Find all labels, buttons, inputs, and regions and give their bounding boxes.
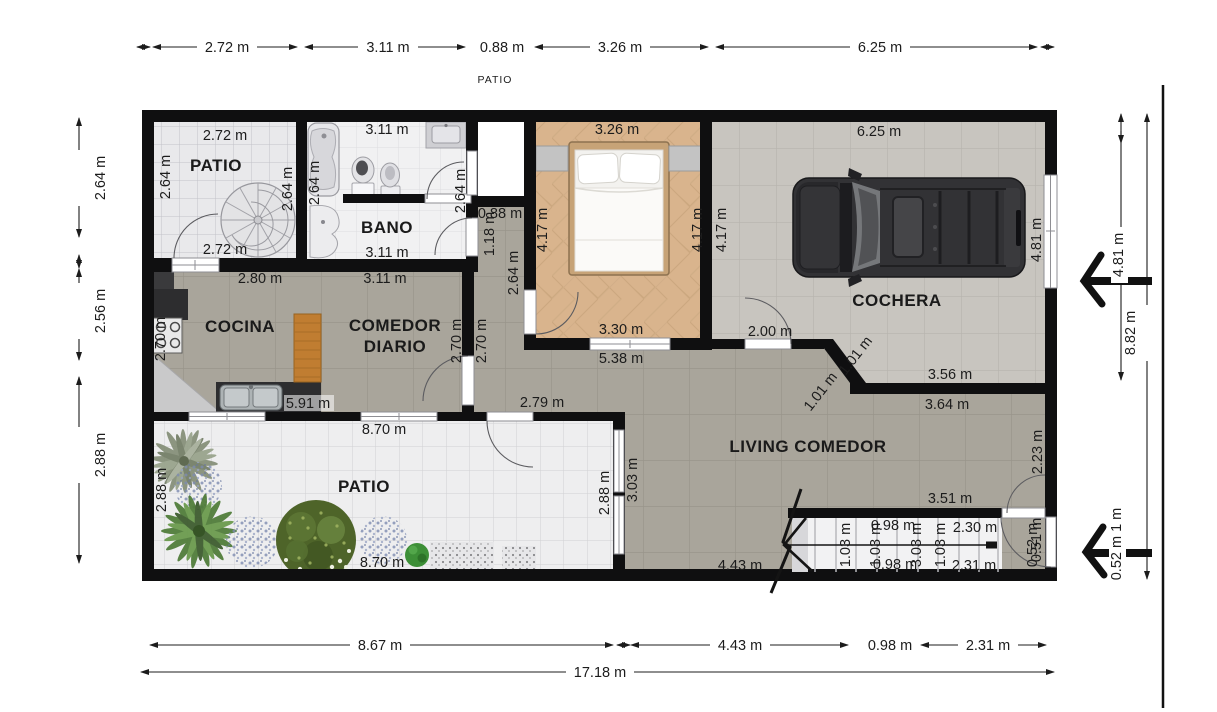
svg-text:3.11 m: 3.11 m xyxy=(363,271,406,287)
svg-text:5.38 m: 5.38 m xyxy=(599,351,643,367)
svg-text:3.64 m: 3.64 m xyxy=(925,397,969,413)
svg-text:6.25 m: 6.25 m xyxy=(857,124,901,140)
svg-text:COCINA: COCINA xyxy=(205,317,275,336)
svg-text:2.31 m: 2.31 m xyxy=(952,558,996,574)
svg-text:2.70 m: 2.70 m xyxy=(474,319,490,363)
svg-text:2.31 m: 2.31 m xyxy=(966,638,1010,654)
svg-text:8.70 m: 8.70 m xyxy=(360,555,404,571)
svg-text:3.26 m: 3.26 m xyxy=(595,122,639,138)
svg-text:8.67 m: 8.67 m xyxy=(358,638,402,654)
svg-text:2.30 m: 2.30 m xyxy=(953,520,997,536)
svg-text:DIARIO: DIARIO xyxy=(364,337,427,356)
svg-text:2.88 m: 2.88 m xyxy=(93,433,109,477)
svg-text:2.72 m: 2.72 m xyxy=(205,40,249,56)
svg-text:PATIO: PATIO xyxy=(338,477,390,496)
svg-text:3.51 m: 3.51 m xyxy=(928,491,972,507)
svg-text:17.18 m: 17.18 m xyxy=(574,665,626,681)
svg-text:BANO: BANO xyxy=(361,218,413,237)
svg-text:4.17 m: 4.17 m xyxy=(690,208,706,252)
svg-text:2.64 m: 2.64 m xyxy=(453,169,469,213)
svg-text:3.30 m: 3.30 m xyxy=(599,322,643,338)
svg-text:4.17 m: 4.17 m xyxy=(714,208,730,252)
svg-text:1.03 m: 1.03 m xyxy=(868,523,884,567)
svg-text:2.64 m: 2.64 m xyxy=(506,251,522,295)
svg-text:3.11 m: 3.11 m xyxy=(365,245,408,261)
svg-text:1.03 m: 1.03 m xyxy=(933,523,949,567)
svg-text:4.43 m: 4.43 m xyxy=(718,558,762,574)
svg-text:3.11 m: 3.11 m xyxy=(366,40,409,56)
svg-text:LIVING COMEDOR: LIVING COMEDOR xyxy=(729,437,886,456)
svg-text:4.81 m: 4.81 m xyxy=(1111,233,1127,277)
svg-text:2.64 m: 2.64 m xyxy=(93,156,109,200)
svg-text:4.43 m: 4.43 m xyxy=(718,638,762,654)
svg-text:2.64 m: 2.64 m xyxy=(158,155,174,199)
svg-text:2.79 m: 2.79 m xyxy=(520,395,564,411)
svg-text:3.03 m: 3.03 m xyxy=(625,458,641,502)
svg-text:2.64 m: 2.64 m xyxy=(280,167,296,211)
svg-text:2.00 m: 2.00 m xyxy=(748,324,792,340)
svg-text:0.88 m: 0.88 m xyxy=(480,40,524,56)
svg-text:1.03 m: 1.03 m xyxy=(838,523,854,567)
svg-text:2.72 m: 2.72 m xyxy=(203,128,247,144)
svg-text:2.72 m: 2.72 m xyxy=(203,242,247,258)
svg-text:2.70 m: 2.70 m xyxy=(449,319,465,363)
svg-text:2.88 m: 2.88 m xyxy=(154,468,170,512)
svg-text:4.81 m: 4.81 m xyxy=(1029,218,1045,262)
svg-text:PATIO: PATIO xyxy=(478,74,513,86)
svg-text:2.88 m: 2.88 m xyxy=(597,471,613,515)
svg-text:0.98 m: 0.98 m xyxy=(868,638,912,654)
svg-text:2.56 m: 2.56 m xyxy=(93,289,109,333)
svg-text:3.26 m: 3.26 m xyxy=(598,40,642,56)
svg-text:2.64 m: 2.64 m xyxy=(307,161,323,205)
svg-text:5.91 m: 5.91 m xyxy=(286,396,330,412)
svg-text:6.25 m: 6.25 m xyxy=(858,40,902,56)
svg-text:COCHERA: COCHERA xyxy=(852,291,941,310)
svg-text:8.82 m: 8.82 m xyxy=(1123,311,1139,355)
svg-text:3.56 m: 3.56 m xyxy=(928,367,972,383)
svg-text:8.70 m: 8.70 m xyxy=(362,422,406,438)
svg-text:3.11 m: 3.11 m xyxy=(365,122,408,138)
svg-text:0.52 m 1 m: 0.52 m 1 m xyxy=(1109,508,1125,581)
svg-text:PATIO: PATIO xyxy=(190,156,242,175)
svg-text:0.51 m: 0.51 m xyxy=(1029,518,1045,562)
svg-text:2.70 m: 2.70 m xyxy=(153,317,169,361)
svg-text:COMEDOR: COMEDOR xyxy=(349,316,441,335)
svg-text:2.23 m: 2.23 m xyxy=(1030,430,1046,474)
svg-text:4.17 m: 4.17 m xyxy=(535,208,551,252)
svg-text:1.18 m: 1.18 m xyxy=(482,212,498,256)
svg-text:2.80 m: 2.80 m xyxy=(238,271,282,287)
svg-text:3.03 m: 3.03 m xyxy=(909,523,925,567)
